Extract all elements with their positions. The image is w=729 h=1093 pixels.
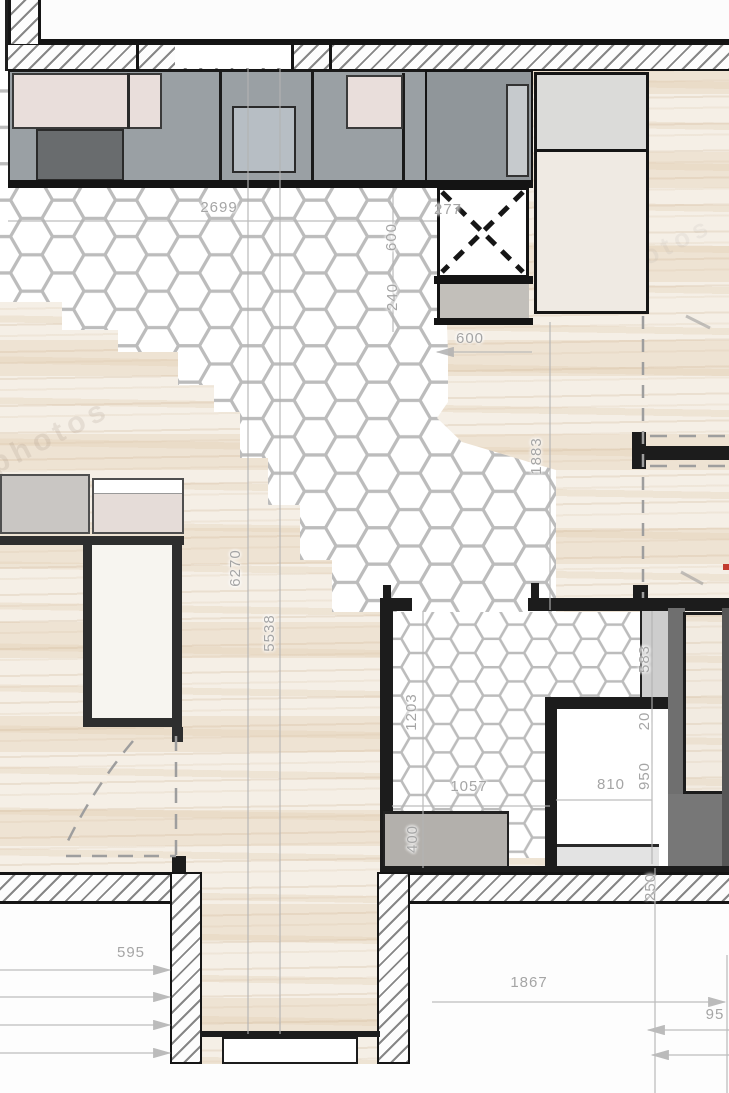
dim-810: 810 [586,776,636,793]
dim-95: 95 [700,1006,729,1023]
dim-595: 595 [102,944,160,961]
dim-250: 250 [643,857,659,917]
dim-240: 240 [385,267,401,327]
dim-1883: 1883 [529,426,545,486]
dim-277: 277 [427,201,469,218]
dim-1203: 1203 [404,682,420,742]
dim-400: 400 [405,809,421,869]
dim-583: 583 [637,629,653,689]
dim-600-horizontal: 600 [444,330,496,347]
dim-6270: 6270 [228,538,244,598]
dim-2699: 2699 [186,199,252,216]
dim-20: 20 [637,691,653,751]
plan-canvas: photos photos [0,0,729,1093]
dim-1867: 1867 [496,974,562,991]
dim-5538: 5538 [262,603,278,663]
dim-950: 950 [637,746,653,806]
dim-600-vertical: 600 [384,207,400,267]
dimension-lines [0,0,729,1093]
dim-1057: 1057 [436,778,502,795]
